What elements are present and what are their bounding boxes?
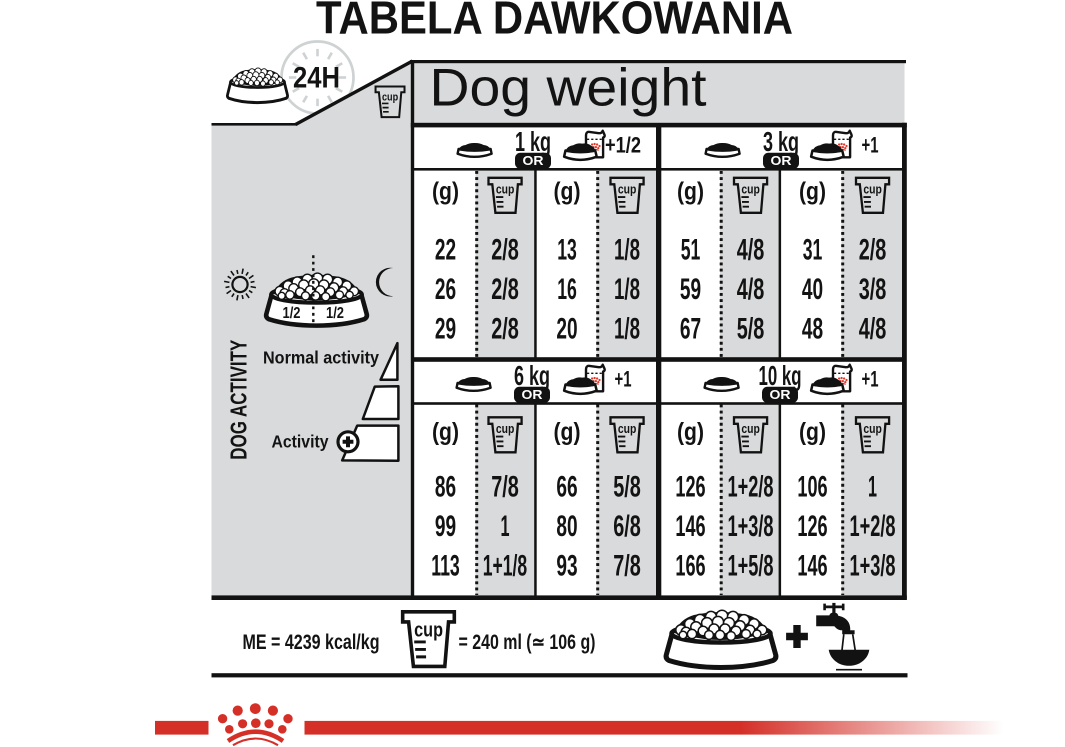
svg-text:5/8: 5/8	[613, 471, 641, 504]
svg-text:2/8: 2/8	[491, 234, 519, 267]
svg-text:22: 22	[435, 234, 456, 267]
svg-text:80: 80	[556, 510, 577, 543]
svg-text:1: 1	[868, 471, 877, 504]
svg-text:OR: OR	[771, 153, 793, 168]
svg-text:(g): (g)	[799, 178, 826, 206]
svg-text:1/2: 1/2	[326, 305, 344, 322]
svg-text:67: 67	[680, 313, 701, 346]
svg-text:1/2: 1/2	[283, 305, 301, 322]
svg-text:(g): (g)	[554, 418, 581, 446]
svg-text:59: 59	[680, 273, 701, 306]
svg-text:93: 93	[556, 550, 577, 583]
svg-text:TABELA DAWKOWANIA: TABELA DAWKOWANIA	[316, 0, 793, 44]
svg-text:13: 13	[557, 234, 577, 267]
svg-text:3/8: 3/8	[859, 273, 887, 306]
svg-text:(g): (g)	[432, 178, 459, 206]
svg-text:146: 146	[675, 510, 705, 543]
svg-text:2/8: 2/8	[491, 273, 519, 306]
svg-text:1+2/8: 1+2/8	[850, 510, 896, 543]
svg-text:4/8: 4/8	[859, 313, 887, 346]
svg-text:+1/2: +1/2	[605, 132, 641, 157]
svg-text:126: 126	[797, 510, 827, 543]
svg-text:113: 113	[431, 550, 460, 583]
svg-text:4/8: 4/8	[737, 273, 765, 306]
svg-text:48: 48	[802, 313, 823, 346]
svg-text:31: 31	[803, 234, 823, 267]
svg-text:7/8: 7/8	[491, 471, 519, 504]
svg-text:66: 66	[556, 471, 577, 504]
svg-text:(g): (g)	[677, 418, 704, 446]
svg-text:106: 106	[797, 471, 827, 504]
svg-text:DOG ACTIVITY: DOG ACTIVITY	[225, 339, 251, 459]
svg-text:(g): (g)	[799, 418, 826, 446]
svg-text:+1: +1	[862, 366, 879, 391]
svg-text:+1: +1	[615, 366, 632, 391]
svg-text:86: 86	[435, 471, 456, 504]
svg-text:ME = 4239 kcal/kg: ME = 4239 kcal/kg	[243, 631, 380, 654]
svg-text:51: 51	[681, 234, 701, 267]
svg-text:(g): (g)	[554, 178, 581, 206]
svg-text:126: 126	[675, 471, 705, 504]
svg-text:1+3/8: 1+3/8	[850, 550, 896, 583]
svg-text:+1: +1	[862, 132, 879, 157]
svg-text:29: 29	[435, 313, 456, 346]
svg-text:OR: OR	[522, 387, 544, 402]
svg-text:= 240 ml (≃ 106 g): = 240 ml (≃ 106 g)	[459, 631, 596, 654]
svg-text:2/8: 2/8	[859, 234, 887, 267]
svg-text:1/8: 1/8	[614, 313, 640, 346]
svg-text:40: 40	[802, 273, 823, 306]
svg-text:1+1/8: 1+1/8	[483, 550, 527, 583]
svg-text:24H: 24H	[293, 62, 340, 95]
svg-text:1/8: 1/8	[614, 234, 640, 267]
svg-text:16: 16	[557, 273, 577, 306]
svg-text:6/8: 6/8	[613, 510, 641, 543]
svg-text:166: 166	[675, 550, 705, 583]
svg-text:1+2/8: 1+2/8	[728, 471, 774, 504]
svg-text:26: 26	[435, 273, 456, 306]
svg-text:1+3/8: 1+3/8	[728, 510, 774, 543]
svg-text:Normal activity: Normal activity	[263, 348, 379, 368]
svg-text:2/8: 2/8	[491, 313, 519, 346]
svg-text:Dog weight: Dog weight	[430, 59, 707, 118]
svg-text:7/8: 7/8	[613, 550, 641, 583]
svg-text:(g): (g)	[677, 178, 704, 206]
svg-text:(g): (g)	[432, 418, 459, 446]
svg-text:146: 146	[797, 550, 827, 583]
svg-text:OR: OR	[770, 387, 792, 402]
svg-text:OR: OR	[523, 153, 545, 168]
svg-text:1+5/8: 1+5/8	[728, 550, 774, 583]
svg-text:5/8: 5/8	[737, 313, 765, 346]
svg-text:1/8: 1/8	[614, 273, 640, 306]
svg-text:4/8: 4/8	[737, 234, 765, 267]
svg-text:20: 20	[556, 313, 577, 346]
svg-text:1: 1	[501, 510, 510, 543]
svg-text:99: 99	[435, 510, 456, 543]
svg-text:Activity: Activity	[272, 432, 329, 452]
